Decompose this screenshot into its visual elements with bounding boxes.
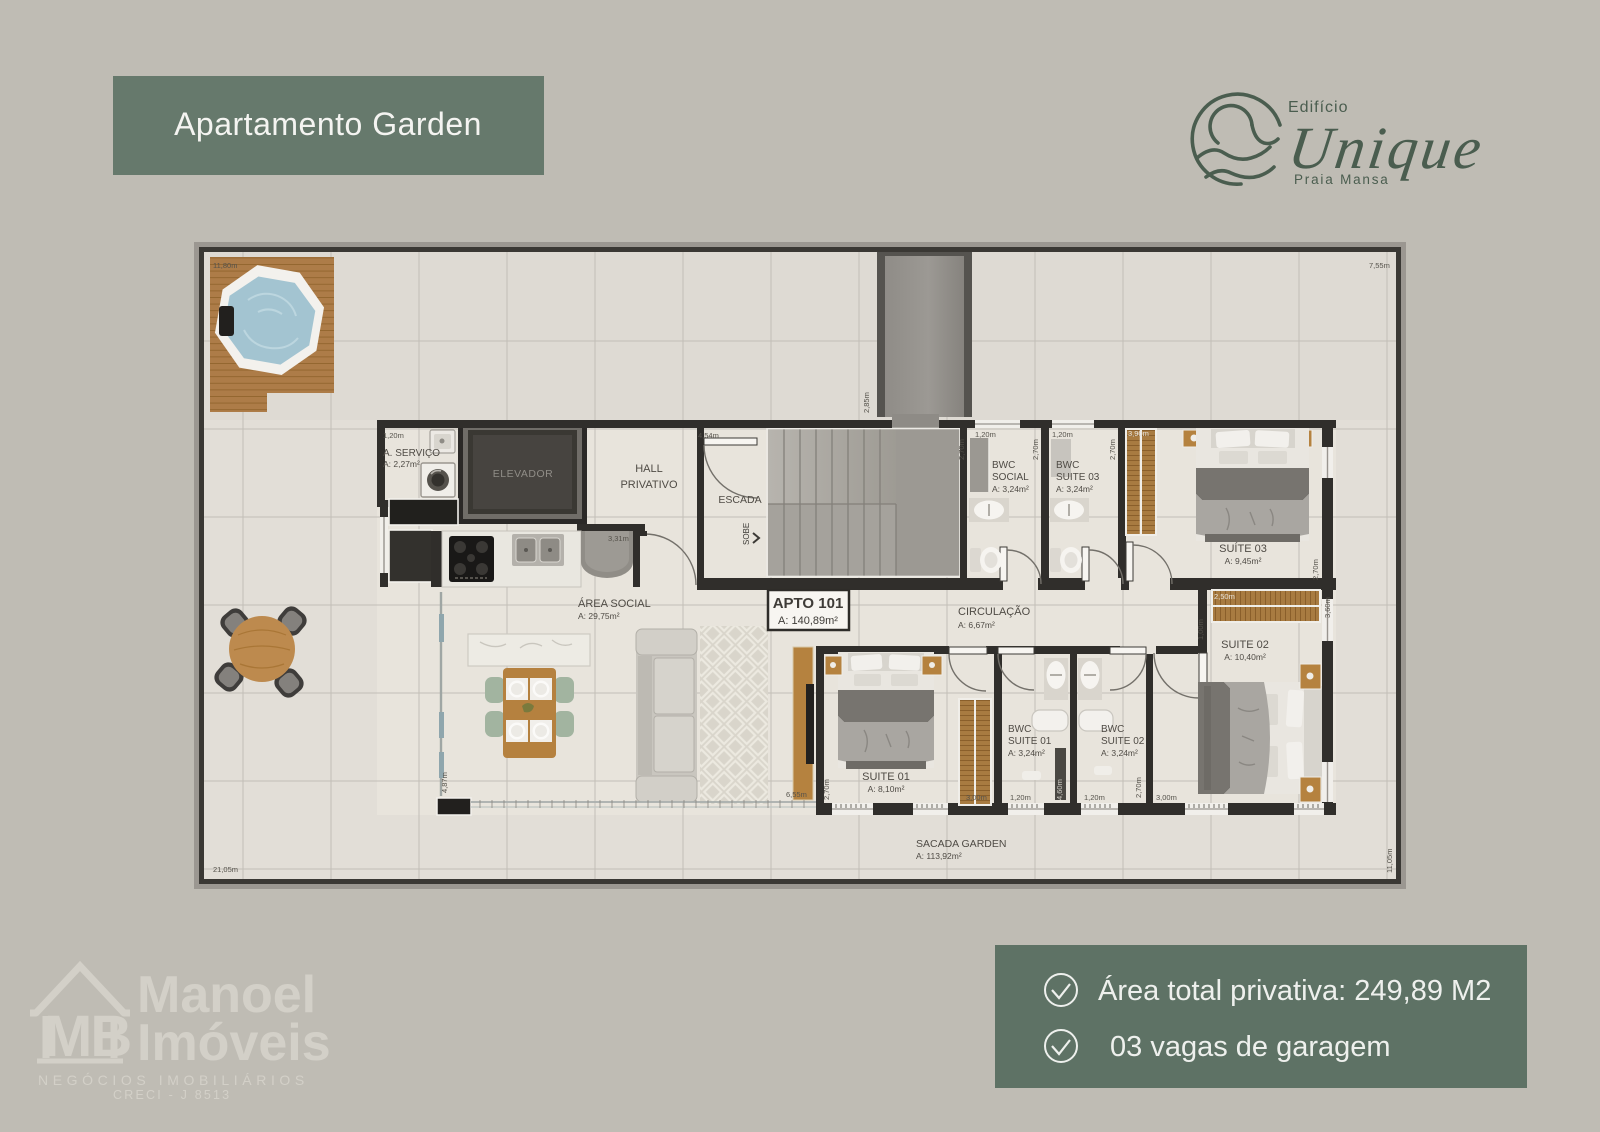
svg-text:1,20m: 1,20m	[1052, 430, 1073, 439]
svg-text:3,60m: 3,60m	[1323, 597, 1332, 618]
svg-text:Praia Mansa: Praia Mansa	[1294, 172, 1390, 187]
svg-text:3,00m: 3,00m	[966, 793, 987, 802]
svg-text:A: 3,24m²: A: 3,24m²	[1056, 484, 1093, 494]
svg-text:PRIVATIVO: PRIVATIVO	[620, 479, 677, 491]
svg-text:SUITE 02: SUITE 02	[1221, 639, 1269, 651]
svg-text:Apartamento Garden: Apartamento Garden	[174, 106, 482, 142]
svg-text:1,20m: 1,20m	[383, 431, 404, 440]
svg-text:2,85m: 2,85m	[862, 392, 871, 413]
svg-text:SUÍTE 03: SUÍTE 03	[1219, 542, 1267, 555]
svg-text:ESCADA: ESCADA	[718, 494, 761, 506]
svg-text:3,90m: 3,90m	[1128, 429, 1149, 438]
svg-text:21,05m: 21,05m	[213, 865, 238, 874]
svg-text:Edifício: Edifício	[1288, 99, 1348, 116]
svg-text:HALL: HALL	[635, 463, 663, 475]
svg-text:03 vagas de garagem: 03 vagas de garagem	[1110, 1031, 1391, 1063]
svg-text:1,20m: 1,20m	[1084, 793, 1105, 802]
svg-text:SUITE 01: SUITE 01	[862, 771, 910, 783]
svg-text:A: 113,92m²: A: 113,92m²	[916, 851, 962, 861]
svg-text:ÁREA SOCIAL: ÁREA SOCIAL	[578, 597, 651, 610]
svg-text:APTO 101: APTO 101	[773, 595, 844, 612]
svg-text:A: 10,40m²: A: 10,40m²	[1224, 652, 1266, 662]
svg-text:A: 3,24m²: A: 3,24m²	[1101, 748, 1138, 758]
svg-text:SUITE 02: SUITE 02	[1101, 736, 1145, 747]
svg-text:SOBE: SOBE	[742, 523, 751, 545]
svg-text:A: 140,89m²: A: 140,89m²	[778, 615, 838, 627]
svg-text:Imóveis: Imóveis	[137, 1014, 331, 1072]
svg-text:A: 29,75m²: A: 29,75m²	[578, 611, 620, 621]
svg-text:BWC: BWC	[992, 460, 1015, 471]
svg-text:CIRCULAÇÃO: CIRCULAÇÃO	[958, 605, 1031, 618]
svg-text:A: 3,24m²: A: 3,24m²	[1008, 748, 1045, 758]
svg-text:SUITE 03: SUITE 03	[1056, 472, 1100, 483]
svg-text:2,70m: 2,70m	[1031, 439, 1040, 460]
svg-text:BWC: BWC	[1101, 724, 1124, 735]
svg-text:6,55m: 6,55m	[786, 790, 807, 799]
svg-text:7,55m: 7,55m	[1369, 261, 1390, 270]
svg-text:2,70m: 2,70m	[1134, 777, 1143, 798]
svg-text:SUITE 01: SUITE 01	[1008, 736, 1052, 747]
svg-text:SACADA GARDEN: SACADA GARDEN	[916, 838, 1006, 850]
svg-text:A: 3,24m²: A: 3,24m²	[992, 484, 1029, 494]
svg-text:2,70m: 2,70m	[957, 439, 966, 460]
svg-text:3,00m: 3,00m	[1156, 793, 1177, 802]
svg-text:1,00m: 1,00m	[1196, 619, 1205, 640]
svg-text:2,70m: 2,70m	[822, 779, 831, 800]
svg-text:A: 9,45m²: A: 9,45m²	[1225, 556, 1262, 566]
svg-text:BWC: BWC	[1008, 724, 1031, 735]
svg-text:2,70m: 2,70m	[1311, 559, 1320, 580]
svg-text:Área total privativa: 249,89 M: Área total privativa: 249,89 M2	[1098, 974, 1491, 1007]
svg-text:MB: MB	[44, 1004, 130, 1069]
svg-text:1,20m: 1,20m	[975, 430, 996, 439]
svg-text:3,31m: 3,31m	[608, 534, 629, 543]
svg-text:11,80m: 11,80m	[213, 261, 237, 270]
svg-text:11,05m: 11,05m	[1385, 849, 1394, 873]
svg-text:NEGÓCIOS IMOBILIÁRIOS: NEGÓCIOS IMOBILIÁRIOS	[38, 1072, 309, 1088]
svg-text:2,70m: 2,70m	[1108, 439, 1117, 460]
svg-text:A: 2,27m²: A: 2,27m²	[383, 459, 420, 469]
svg-text:ELEVADOR: ELEVADOR	[493, 468, 553, 480]
svg-text:4,60m: 4,60m	[1055, 779, 1064, 800]
svg-text:CRECI - J 8513: CRECI - J 8513	[113, 1088, 231, 1102]
svg-text:SOCIAL: SOCIAL	[992, 472, 1029, 483]
svg-text:BWC: BWC	[1056, 460, 1079, 471]
svg-text:1,20m: 1,20m	[1010, 793, 1031, 802]
svg-text:A: 8,10m²: A: 8,10m²	[868, 784, 905, 794]
svg-text:4,54m: 4,54m	[698, 431, 719, 440]
svg-text:A. SERVIÇO: A. SERVIÇO	[383, 448, 440, 459]
svg-text:2,50m: 2,50m	[1214, 592, 1235, 601]
svg-text:A: 6,67m²: A: 6,67m²	[958, 620, 995, 630]
svg-text:4,87m: 4,87m	[440, 772, 449, 793]
